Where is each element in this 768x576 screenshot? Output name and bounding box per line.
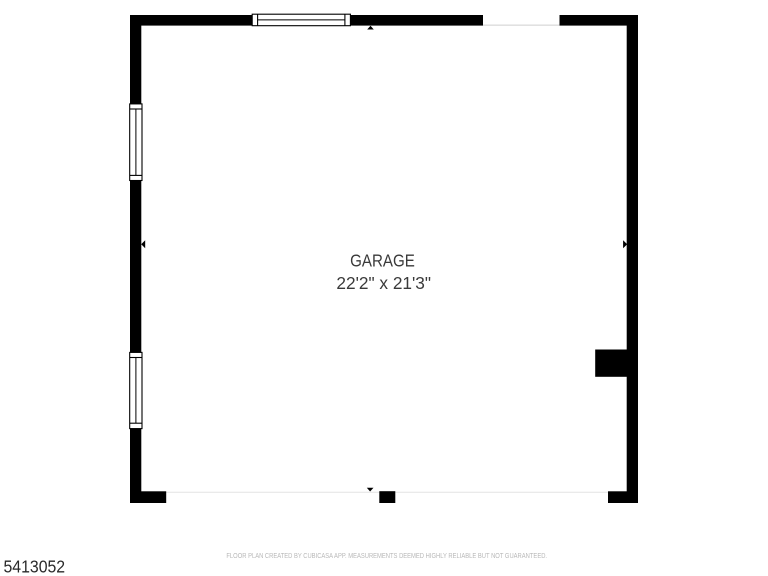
svg-text:GARAGE: GARAGE (350, 250, 415, 271)
svg-text:FLOOR PLAN CREATED BY CUBICASA: FLOOR PLAN CREATED BY CUBICASA APP. MEAS… (226, 553, 547, 561)
svg-text:5413052: 5413052 (4, 557, 66, 576)
svg-text:22'2" x 21'3": 22'2" x 21'3" (336, 273, 431, 293)
